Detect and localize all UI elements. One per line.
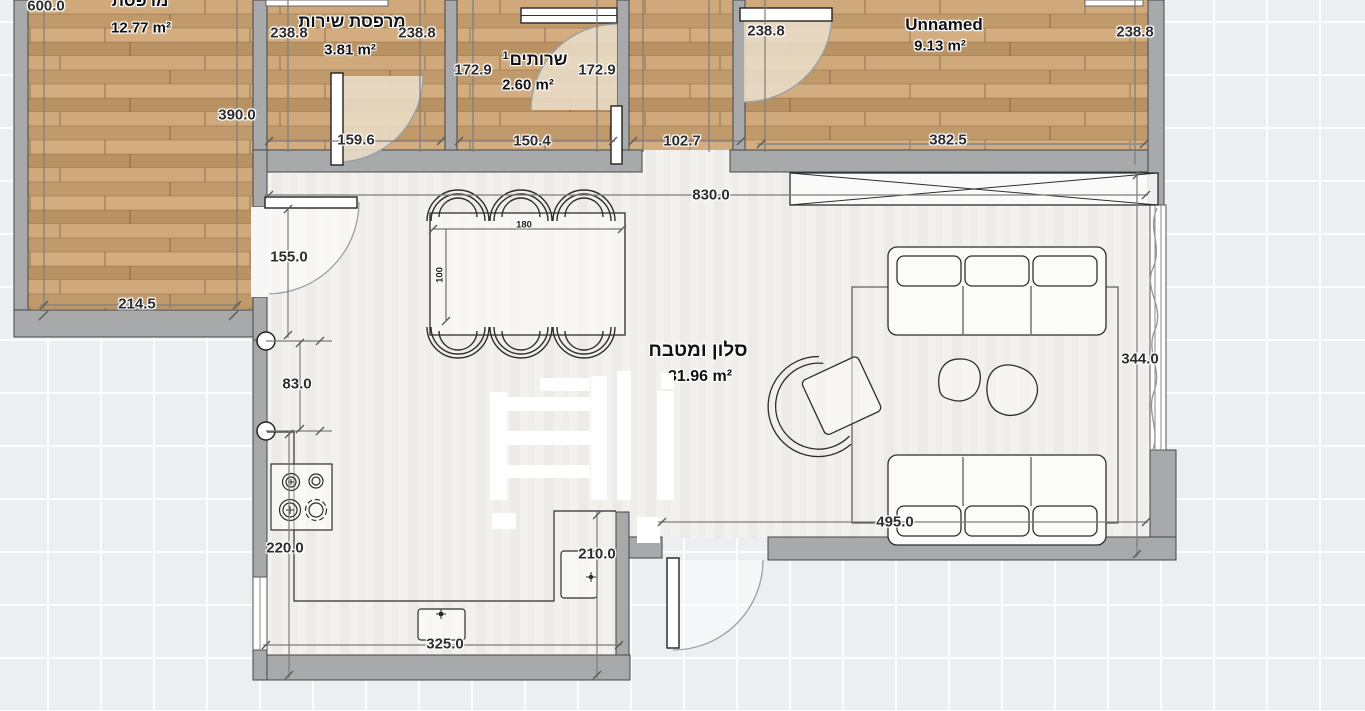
room-label-living-kitchen[interactable]: סלון ומטבח <box>649 340 748 362</box>
wall-living-top-left[interactable] <box>253 150 642 172</box>
dim-kitchen-bottom[interactable]: 325.0 <box>426 636 464 653</box>
sofa-top[interactable] <box>888 247 1106 335</box>
room-label-service-balcony[interactable]: מרפסת שירות <box>298 12 405 32</box>
room-area-unnamed: 9.13 m² <box>914 38 966 55</box>
dim-balcony-height[interactable]: 390.0 <box>218 107 256 124</box>
dim-hall-width[interactable]: 102.7 <box>663 133 701 150</box>
door-leaf[interactable] <box>740 8 832 21</box>
dim-kitchen-island[interactable]: 210.0 <box>578 546 616 563</box>
door-opening <box>251 207 269 297</box>
wall-living-top-right[interactable] <box>730 150 1162 172</box>
window-service-top[interactable] <box>266 0 388 6</box>
room-label-balcony[interactable]: מרפסת <box>112 0 169 11</box>
hallway-passage-floor[interactable] <box>642 150 730 173</box>
room-area-bathroom: 2.60 m² <box>502 77 554 94</box>
door-leaf[interactable] <box>265 197 357 208</box>
dim-balcony-width-bottom[interactable]: 214.5 <box>118 296 156 313</box>
wall-hall-unnamed-divider[interactable] <box>733 0 745 150</box>
wall-kitchen-bottom[interactable] <box>253 655 630 680</box>
floor-plan-canvas[interactable]: מרפסת 12.77 m² מרפסת שירות 3.81 m² 1שרות… <box>0 0 1365 711</box>
coffee-table-large[interactable] <box>987 365 1038 415</box>
dim-wall-segment[interactable]: 83.0 <box>282 376 311 393</box>
dim-bathroom-width[interactable]: 150.4 <box>513 133 551 150</box>
window-unnamed-top[interactable] <box>1085 0 1143 6</box>
door-swing-area <box>673 560 763 650</box>
wall-left-corner[interactable] <box>253 650 267 680</box>
dim-table-depth[interactable]: 100 <box>435 267 446 283</box>
wall-balcony-bottom[interactable] <box>14 310 267 337</box>
room-name-text: שרותים <box>510 50 568 69</box>
wall-balcony-service-divider[interactable] <box>253 0 267 150</box>
dim-balcony-width-top[interactable]: 600.0 <box>27 0 65 15</box>
dim-service-right[interactable]: 238.8 <box>398 25 436 42</box>
dim-table-width[interactable]: 180 <box>516 220 532 231</box>
dim-bathroom-left[interactable]: 172.9 <box>454 62 492 79</box>
door-leaf[interactable] <box>331 73 343 165</box>
cooktop[interactable] <box>271 464 332 530</box>
room-number: 1 <box>503 50 509 62</box>
sofa-bottom[interactable] <box>888 455 1106 545</box>
door-leaf[interactable] <box>667 558 679 648</box>
wall-balcony-left[interactable] <box>14 0 28 337</box>
wall-left-lower[interactable] <box>253 340 267 577</box>
hallway-floor[interactable] <box>629 0 733 150</box>
door-entrance[interactable] <box>667 558 763 650</box>
dim-service-width[interactable]: 159.6 <box>337 132 375 149</box>
window-living-right[interactable] <box>1150 205 1166 450</box>
dim-kitchen-left[interactable]: 220.0 <box>266 540 304 557</box>
dim-living-height[interactable]: 344.0 <box>1121 351 1159 368</box>
dim-bathroom-right[interactable]: 172.9 <box>578 62 616 79</box>
window-kitchen-left[interactable] <box>253 577 267 650</box>
dim-sofa-wall[interactable]: 495.0 <box>876 514 914 531</box>
dining-table[interactable] <box>430 213 625 335</box>
room-area-balcony: 12.77 m² <box>111 20 171 37</box>
room-area-service-balcony: 3.81 m² <box>324 42 376 59</box>
sideboard-unit[interactable] <box>790 173 1158 205</box>
coffee-table-small[interactable] <box>939 359 981 401</box>
dim-balcony-door-offset[interactable]: 155.0 <box>270 249 308 266</box>
window-bathroom-top[interactable] <box>521 8 617 23</box>
room-label-bathroom[interactable]: 1שרותים <box>503 50 568 70</box>
dim-unnamed-left[interactable]: 238.8 <box>747 23 785 40</box>
dim-living-width[interactable]: 830.0 <box>692 187 730 204</box>
dim-unnamed-right[interactable]: 238.8 <box>1116 24 1154 41</box>
room-balcony-floor[interactable] <box>28 0 253 310</box>
door-leaf[interactable] <box>611 106 622 164</box>
room-area-living-kitchen: 31.96 m² <box>668 368 732 386</box>
room-label-unnamed[interactable]: Unnamed <box>905 15 982 35</box>
whiteout-patch <box>661 373 674 389</box>
dim-unnamed-width[interactable]: 382.5 <box>929 132 967 149</box>
dim-service-left[interactable]: 238.8 <box>270 25 308 42</box>
